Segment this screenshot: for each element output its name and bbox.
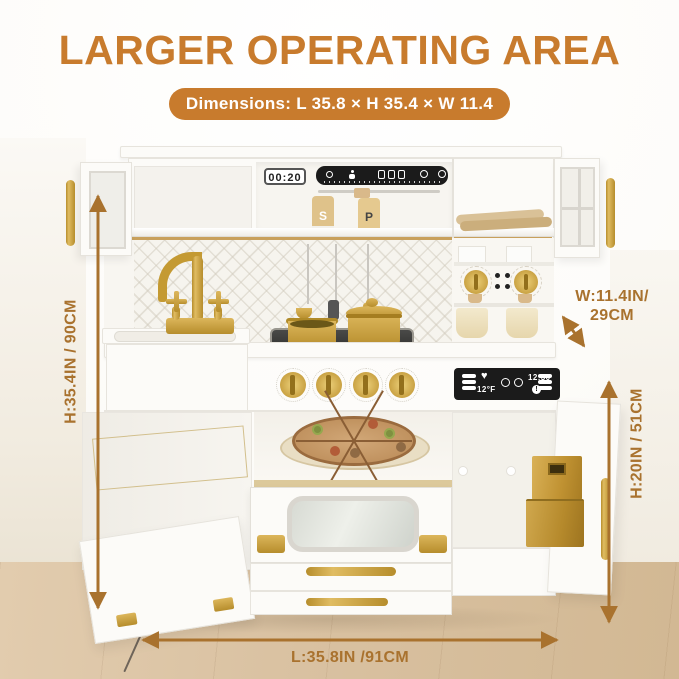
lower-height-label: H:20IN / 51CM — [627, 374, 646, 514]
height-label: H:35.4IN / 90CM — [61, 287, 80, 437]
dimension-arrows — [0, 0, 679, 679]
product-image: LARGER OPERATING AREA Dimensions: L 35.8… — [0, 0, 679, 679]
depth-label-line2: 29CM — [560, 306, 664, 325]
depth-label: W:11.4IN/ 29CM — [560, 287, 664, 325]
depth-label-line1: W:11.4IN/ — [560, 287, 664, 306]
length-label: L:35.8IN /91CM — [250, 648, 450, 667]
